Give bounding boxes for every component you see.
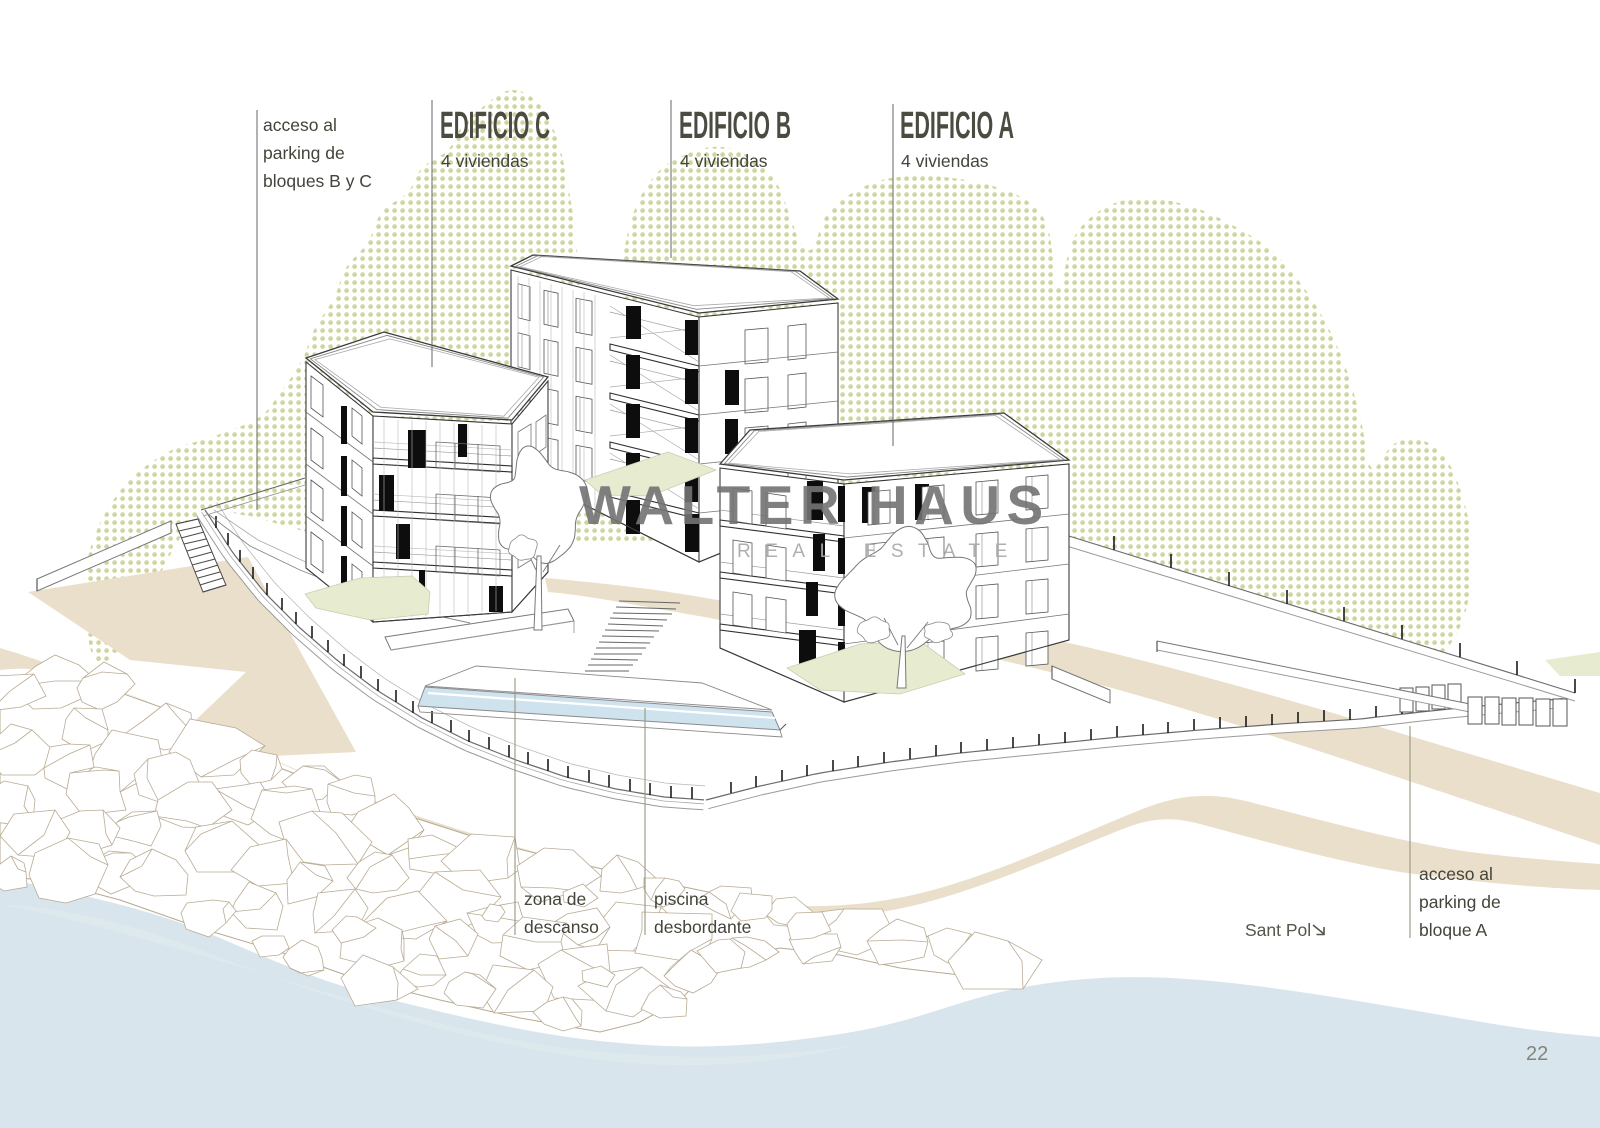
- svg-text:desbordante: desbordante: [654, 917, 751, 937]
- svg-text:4 viviendas: 4 viviendas: [441, 151, 529, 171]
- svg-text:EDIFICIO B: EDIFICIO B: [679, 105, 791, 147]
- svg-text:REAL ESTATE: REAL ESTATE: [737, 541, 1022, 562]
- svg-text:EDIFICIO A: EDIFICIO A: [900, 105, 1014, 147]
- svg-text:acceso al: acceso al: [1419, 864, 1493, 884]
- svg-text:piscina: piscina: [654, 889, 709, 909]
- svg-text:Sant Pol: Sant Pol: [1245, 920, 1311, 940]
- svg-text:acceso al: acceso al: [263, 115, 337, 135]
- svg-text:22: 22: [1526, 1043, 1548, 1065]
- svg-text:descanso: descanso: [524, 917, 599, 937]
- svg-text:parking de: parking de: [1419, 892, 1501, 912]
- svg-text:bloques B y C: bloques B y C: [263, 171, 372, 191]
- svg-text:WALTER HAUS: WALTER HAUS: [579, 474, 1050, 536]
- svg-text:EDIFICIO C: EDIFICIO C: [440, 105, 550, 147]
- svg-text:4 viviendas: 4 viviendas: [680, 151, 768, 171]
- svg-text:zona de: zona de: [524, 889, 586, 909]
- svg-text:parking de: parking de: [263, 143, 345, 163]
- svg-text:4 viviendas: 4 viviendas: [901, 151, 989, 171]
- svg-text:bloque A: bloque A: [1419, 920, 1487, 940]
